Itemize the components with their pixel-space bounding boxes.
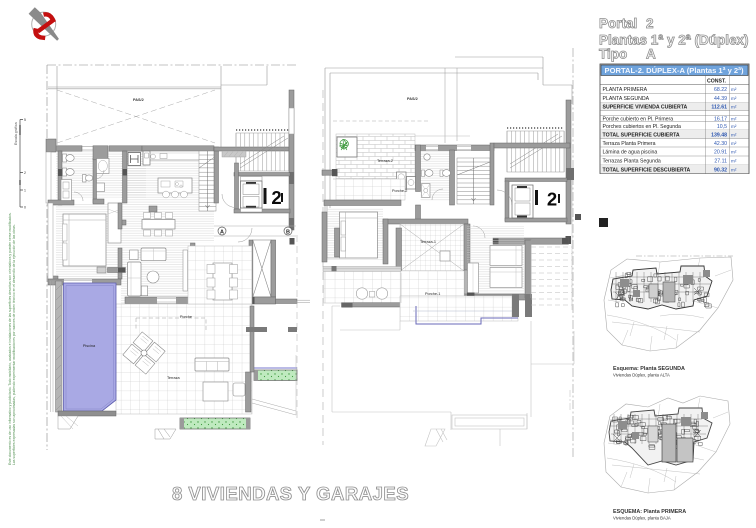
svg-text:CONST.: CONST. xyxy=(707,79,727,85)
svg-text:2: 2 xyxy=(24,171,26,175)
svg-text:Tipo: Tipo xyxy=(599,47,627,62)
svg-text:44.39: 44.39 xyxy=(714,96,727,102)
svg-text:A: A xyxy=(220,229,224,235)
svg-text:Viviendas Dúplex, planta BAJA: Viviendas Dúplex, planta BAJA xyxy=(613,516,671,521)
svg-text:PLANTA PRIMERA: PLANTA PRIMERA xyxy=(603,87,648,93)
svg-text:ESQUEMA: Planta PRIMERA: ESQUEMA: Planta PRIMERA xyxy=(613,509,686,515)
svg-text:Viviendas Dúplex, planta ALTA: Viviendas Dúplex, planta ALTA xyxy=(613,373,670,378)
svg-text:PAS/2: PAS/2 xyxy=(407,97,418,101)
svg-text:Terrazas Planta Segunda: Terrazas Planta Segunda xyxy=(603,159,661,165)
svg-text:m²: m² xyxy=(731,87,737,92)
svg-text:Portal: Portal xyxy=(599,16,637,31)
svg-text:42.30: 42.30 xyxy=(714,141,727,147)
svg-text:m²: m² xyxy=(731,117,737,122)
svg-text:2: 2 xyxy=(547,189,557,210)
svg-text:m²: m² xyxy=(731,124,737,129)
svg-text:2: 2 xyxy=(646,16,654,31)
svg-text:A: A xyxy=(646,47,656,62)
svg-text:Porches cubiertos en Pl. Segun: Porches cubiertos en Pl. Segunda xyxy=(603,124,682,130)
svg-text:10,5: 10,5 xyxy=(717,124,727,130)
svg-text:139.48: 139.48 xyxy=(711,132,727,138)
svg-text:Terraza-1: Terraza-1 xyxy=(420,240,436,244)
svg-text:PLANTA SEGUNDA: PLANTA SEGUNDA xyxy=(603,96,650,102)
svg-text:Porche: Porche xyxy=(180,315,192,319)
svg-text:20.91: 20.91 xyxy=(714,150,727,156)
svg-text:TOTAL SUPERFICIE CUBIERTA: TOTAL SUPERFICIE CUBIERTA xyxy=(603,132,680,138)
svg-text:Terraza Planta Primera: Terraza Planta Primera xyxy=(603,141,656,147)
svg-text:m²: m² xyxy=(731,141,737,146)
svg-text:112.61: 112.61 xyxy=(711,105,727,111)
svg-text:Esquema: Planta SEGUNDA: Esquema: Planta SEGUNDA xyxy=(613,366,685,372)
svg-text:PORTAL-2. DÚPLEX-A (Plantas 1ª: PORTAL-2. DÚPLEX-A (Plantas 1ª y 2ª) xyxy=(605,66,744,75)
svg-text:m²: m² xyxy=(731,167,737,172)
svg-text:m²: m² xyxy=(731,150,737,155)
svg-text:m²: m² xyxy=(731,96,737,101)
svg-text:TOTAL SUPERFICIE DESCUBIERTA: TOTAL SUPERFICIE DESCUBIERTA xyxy=(603,167,691,173)
svg-text:Plantas 1ª y 2ª (Dúplex): Plantas 1ª y 2ª (Dúplex) xyxy=(599,33,749,48)
svg-text:0: 0 xyxy=(24,206,26,210)
svg-text:Terraza-2: Terraza-2 xyxy=(377,159,393,163)
svg-text:27.11: 27.11 xyxy=(714,159,727,165)
svg-text:Terraza: Terraza xyxy=(167,376,181,380)
svg-text:Porche-2: Porche-2 xyxy=(392,189,407,193)
svg-text:5: 5 xyxy=(24,118,26,122)
svg-text:2: 2 xyxy=(271,187,281,208)
svg-text:90.32: 90.32 xyxy=(714,167,727,173)
svg-text:SUPERFICIE VIVIENDA CUBIERTA: SUPERFICIE VIVIENDA CUBIERTA xyxy=(603,105,688,111)
svg-text:PAS/2: PAS/2 xyxy=(133,98,144,102)
svg-text:m²: m² xyxy=(731,159,737,164)
svg-text:Lámina de agua piscina: Lámina de agua piscina xyxy=(603,150,658,156)
svg-text:8 VIVIENDAS Y GARAJES: 8 VIVIENDAS Y GARAJES xyxy=(172,483,409,504)
svg-text:m²: m² xyxy=(731,105,737,110)
svg-text:68.22: 68.22 xyxy=(714,87,727,93)
svg-text:Las superficies expresadas son: Las superficies expresadas son aproximad… xyxy=(12,224,16,465)
svg-text:B: B xyxy=(286,229,290,235)
svg-text:m²: m² xyxy=(731,132,737,137)
svg-text:Escala gráfica: Escala gráfica xyxy=(14,122,18,145)
svg-text:Porche-1: Porche-1 xyxy=(425,292,440,296)
svg-text:1: 1 xyxy=(24,189,26,193)
svg-text:Piscina: Piscina xyxy=(83,344,96,348)
